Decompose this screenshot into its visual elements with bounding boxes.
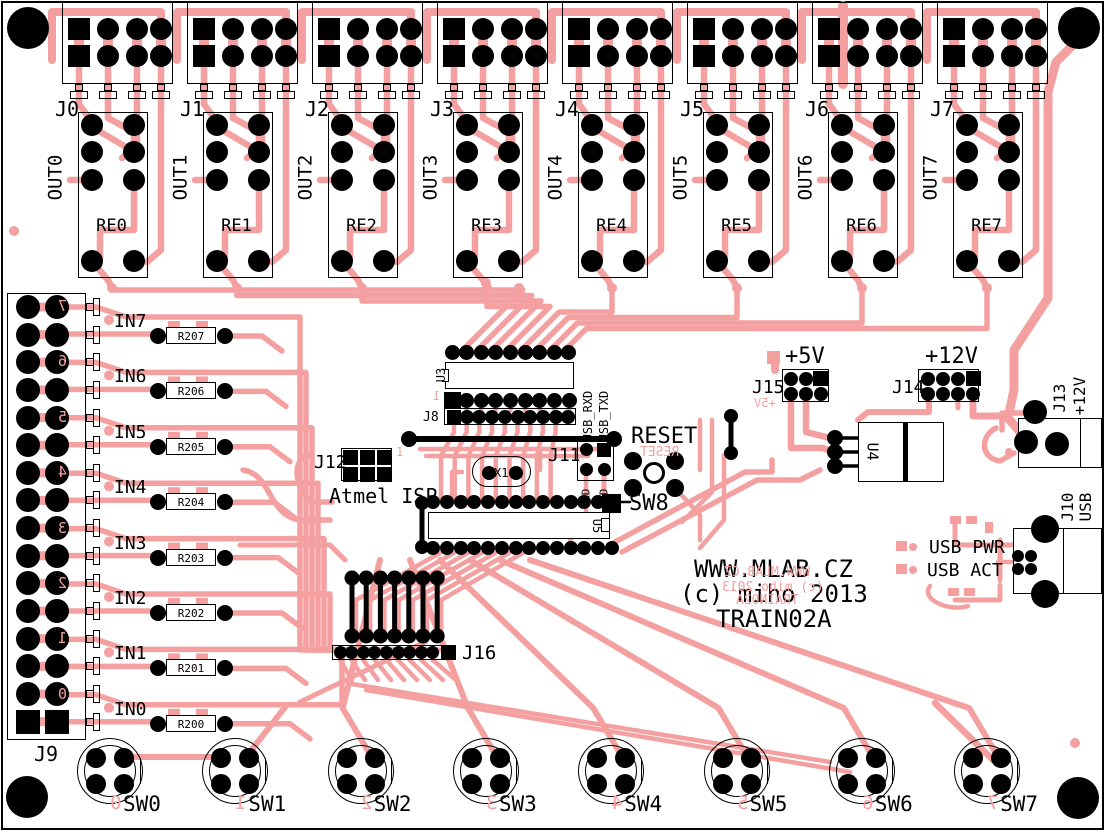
- pad: [485, 410, 499, 424]
- pad: [873, 169, 895, 191]
- pad: [706, 250, 728, 272]
- pad: [581, 114, 603, 136]
- pad: [972, 45, 994, 67]
- terminal-leg: [354, 84, 362, 91]
- terminal-leg: [93, 657, 100, 675]
- pad: [532, 345, 547, 360]
- pad: [495, 541, 509, 555]
- j13-label: J13: [1052, 376, 1068, 420]
- pad: [581, 169, 603, 191]
- terminal-leg: [258, 84, 266, 91]
- pad: [1031, 580, 1059, 608]
- pad: [966, 371, 981, 386]
- pad: [456, 169, 478, 191]
- switch-digit-silk: 4: [611, 794, 622, 813]
- pad: [193, 18, 215, 40]
- resistor: R202: [166, 604, 216, 621]
- channel-digit-silk: 6: [58, 354, 67, 369]
- pad: [501, 45, 523, 67]
- terminal-outline: [562, 2, 673, 84]
- j13-divider: [1080, 418, 1081, 468]
- terminal-leg: [724, 91, 742, 99]
- pad: [876, 45, 898, 67]
- resistor: R205: [166, 438, 216, 455]
- terminal-leg: [883, 84, 891, 91]
- input-label: IN1: [114, 645, 147, 663]
- pad: [16, 599, 40, 623]
- pad: [536, 410, 550, 424]
- pad: [713, 748, 733, 768]
- switch-label: SW2: [374, 794, 412, 815]
- pad: [16, 461, 40, 485]
- pad: [275, 18, 297, 40]
- pad: [693, 18, 715, 40]
- j8-label: J8: [423, 411, 439, 424]
- pad: [956, 250, 978, 272]
- pad: [598, 463, 611, 476]
- pad: [150, 439, 166, 455]
- terminal-leg: [628, 91, 646, 99]
- pad: [873, 250, 895, 272]
- pad: [1023, 400, 1047, 424]
- terminal-leg: [974, 91, 992, 99]
- pad: [365, 774, 385, 794]
- out-label: OUT0: [47, 118, 66, 238]
- pad: [376, 45, 398, 67]
- pad: [900, 45, 922, 67]
- terminal-leg: [782, 84, 790, 91]
- pad: [150, 716, 166, 732]
- switch-chord: [140, 758, 141, 784]
- pad: [509, 541, 523, 555]
- pad: [831, 114, 853, 136]
- out-label: OUT7: [922, 118, 941, 238]
- terminal-outline: [187, 2, 298, 84]
- pad: [45, 378, 69, 402]
- switch-label: SW6: [875, 794, 913, 815]
- pad: [623, 169, 645, 191]
- pad: [373, 141, 395, 163]
- pad: [784, 372, 798, 386]
- input-label: IN3: [114, 535, 147, 553]
- pad: [454, 495, 468, 509]
- pad: [818, 45, 840, 67]
- j9-label: J9: [34, 744, 58, 764]
- connector-label: J7: [930, 99, 954, 119]
- pad: [472, 45, 494, 67]
- terminal-leg: [93, 491, 100, 509]
- terminal-leg: [1008, 84, 1016, 91]
- connector-label: J5: [680, 99, 704, 119]
- connector-label: J1: [180, 99, 204, 119]
- pad: [337, 748, 357, 768]
- j12-pin1-mark: 1: [396, 446, 403, 458]
- resistor: R203: [166, 549, 216, 566]
- u5-body: [428, 512, 610, 539]
- pad: [623, 114, 645, 136]
- pad: [814, 387, 828, 401]
- terminal-leg: [93, 630, 100, 648]
- pad: [784, 387, 798, 401]
- pad: [68, 45, 90, 67]
- atmel-isp-label: Atmel ISP: [329, 486, 437, 506]
- pad: [360, 450, 375, 465]
- pad: [972, 18, 994, 40]
- pad: [503, 393, 518, 408]
- terminal-leg: [633, 84, 641, 91]
- resistor-label: R200: [178, 718, 205, 731]
- pad: [998, 169, 1020, 191]
- pad: [1014, 430, 1038, 454]
- pad: [126, 45, 148, 67]
- pad: [1025, 18, 1047, 40]
- switch-digit-silk: 6: [862, 794, 873, 813]
- pad: [866, 748, 886, 768]
- pad: [536, 495, 550, 509]
- pad: [447, 410, 461, 424]
- pad: [966, 387, 980, 401]
- plus5-label: +5V: [785, 346, 825, 368]
- switch-chord: [1017, 758, 1018, 784]
- pad: [838, 748, 858, 768]
- j11-label: J11: [548, 447, 581, 465]
- channel-digit-silk: 7: [58, 299, 67, 314]
- pad: [467, 495, 481, 509]
- terminal-leg: [93, 381, 100, 399]
- pad: [650, 18, 672, 40]
- terminal-leg: [878, 91, 896, 99]
- u3-body: [445, 362, 574, 389]
- terminal-leg: [450, 84, 458, 91]
- pad: [605, 541, 619, 555]
- pad: [498, 250, 520, 272]
- resistor: R200: [166, 715, 216, 732]
- pad: [936, 387, 950, 401]
- terminal-leg: [950, 84, 958, 91]
- pad: [488, 393, 503, 408]
- pad: [150, 383, 166, 399]
- input-label: IN0: [114, 701, 147, 719]
- pad: [503, 345, 518, 360]
- relay-label: RE6: [828, 218, 895, 235]
- pad: [998, 141, 1020, 163]
- pad: [275, 45, 297, 67]
- brand-url-mirror: WWW.MLAB.CZ: [724, 566, 810, 579]
- pad: [963, 748, 983, 768]
- pad: [876, 18, 898, 40]
- terminal-leg: [604, 84, 612, 91]
- pad: [751, 45, 773, 67]
- pad: [150, 605, 166, 621]
- pad: [741, 774, 761, 794]
- pad: [490, 748, 510, 768]
- pad: [248, 114, 270, 136]
- pad: [217, 660, 233, 676]
- pad: [16, 406, 40, 430]
- pad: [921, 387, 935, 401]
- out-label: OUT4: [547, 118, 566, 238]
- j16-label: J16: [462, 644, 496, 663]
- pad: [81, 114, 103, 136]
- pad: [377, 467, 392, 482]
- pad: [377, 450, 392, 465]
- pad: [445, 345, 460, 360]
- resistor-label: R203: [178, 552, 205, 565]
- pad: [956, 169, 978, 191]
- switch-label: SW0: [123, 794, 161, 815]
- terminal-outline: [937, 2, 1048, 84]
- terminal-leg: [277, 91, 295, 99]
- reset-button: [643, 462, 665, 484]
- j15-label: J15: [752, 379, 785, 397]
- pad: [343, 450, 358, 465]
- switch-label: SW1: [248, 794, 286, 815]
- pad: [481, 541, 495, 555]
- pad: [472, 18, 494, 40]
- resistor: R201: [166, 659, 216, 676]
- pad: [623, 141, 645, 163]
- pad: [1025, 563, 1037, 575]
- resistor-label: R205: [178, 441, 205, 454]
- pad: [68, 18, 90, 40]
- pad: [123, 114, 145, 136]
- channel-digit-silk: 1: [58, 631, 67, 646]
- pad: [373, 114, 395, 136]
- pad: [568, 18, 590, 40]
- switch-label: SW5: [750, 794, 788, 815]
- pad: [813, 371, 828, 386]
- terminal-leg: [854, 84, 862, 91]
- pad: [443, 18, 465, 40]
- terminal-leg: [75, 84, 83, 91]
- terminal-leg: [1003, 91, 1021, 99]
- pad: [666, 479, 684, 497]
- pad: [561, 345, 576, 360]
- terminal-leg: [383, 84, 391, 91]
- pad: [360, 467, 375, 482]
- pad: [16, 682, 40, 706]
- pad: [498, 141, 520, 163]
- input-label: IN6: [114, 368, 147, 386]
- pad: [1025, 45, 1047, 67]
- pad: [462, 774, 482, 794]
- pad: [426, 541, 440, 555]
- pad: [206, 169, 228, 191]
- pad: [248, 169, 270, 191]
- pad: [81, 141, 103, 163]
- pad: [454, 541, 468, 555]
- pad: [831, 250, 853, 272]
- pad: [550, 541, 564, 555]
- input-label: IN5: [114, 424, 147, 442]
- components-layer: U3 1 J8 USB_RXD USB_TXD J11 TXD RXD J12 …: [0, 0, 1107, 832]
- pad: [481, 495, 495, 509]
- pad: [474, 345, 489, 360]
- pad: [318, 18, 340, 40]
- pad: [337, 774, 357, 794]
- pad: [568, 45, 590, 67]
- terminal-leg: [157, 84, 165, 91]
- terminal-leg: [93, 464, 100, 482]
- switch-chord: [641, 758, 642, 784]
- pad: [580, 463, 593, 476]
- pad: [951, 372, 965, 386]
- pad: [482, 466, 496, 480]
- terminal-leg: [907, 84, 915, 91]
- resistor: R204: [166, 493, 216, 510]
- pad: [597, 45, 619, 67]
- pad: [462, 748, 482, 768]
- terminal-leg: [93, 298, 100, 316]
- pad: [751, 18, 773, 40]
- j13-voltage-label: +12V: [1072, 370, 1088, 422]
- pad: [827, 458, 843, 474]
- relay-label: RE3: [453, 218, 520, 235]
- pad: [217, 494, 233, 510]
- terminal-leg: [325, 84, 333, 91]
- pad: [16, 433, 40, 457]
- pad: [831, 141, 853, 163]
- terminal-leg: [93, 547, 100, 565]
- switch-chord: [767, 758, 768, 784]
- pad: [818, 18, 840, 40]
- terminal-leg: [349, 91, 367, 99]
- terminal-leg: [758, 84, 766, 91]
- pad: [459, 393, 474, 408]
- pad: [206, 141, 228, 163]
- pad: [518, 393, 533, 408]
- pad: [550, 495, 564, 509]
- pad: [799, 387, 813, 401]
- pad: [16, 627, 40, 651]
- pad: [443, 45, 465, 67]
- usb-pwr-label: USB PWR: [929, 539, 1005, 557]
- pad: [799, 372, 813, 386]
- terminal-leg: [753, 91, 771, 99]
- pad: [400, 18, 422, 40]
- brand-boardname: TRAIN02A: [716, 607, 832, 631]
- pad: [536, 541, 550, 555]
- j15-mirror-silk: +5V: [754, 397, 776, 409]
- pad: [597, 443, 611, 457]
- terminal-leg: [777, 91, 795, 99]
- pad: [45, 599, 69, 623]
- pad: [626, 45, 648, 67]
- terminal-leg: [508, 84, 516, 91]
- pad: [525, 18, 547, 40]
- resistor-label: R202: [178, 607, 205, 620]
- terminal-leg: [229, 84, 237, 91]
- switch-digit-silk: 5: [737, 794, 748, 813]
- pad: [626, 18, 648, 40]
- pad: [45, 433, 69, 457]
- pad: [838, 774, 858, 794]
- input-label: IN2: [114, 590, 147, 608]
- pad: [206, 114, 228, 136]
- pad: [748, 141, 770, 163]
- pad: [248, 141, 270, 163]
- channel-digit-silk: 0: [58, 687, 67, 702]
- pad: [1012, 550, 1024, 562]
- x1-label: X1: [494, 467, 508, 479]
- pad: [16, 295, 40, 319]
- brand-boardname-mirror: TRAIN02A: [736, 594, 799, 607]
- pad: [86, 774, 106, 794]
- input-label: IN4: [114, 479, 147, 497]
- input-label: IN7: [114, 313, 147, 331]
- pad: [956, 114, 978, 136]
- resistor: R206: [166, 382, 216, 399]
- out-label: OUT2: [297, 118, 316, 238]
- terminal-leg: [93, 602, 100, 620]
- pad: [217, 605, 233, 621]
- pad: [114, 748, 134, 768]
- pad: [748, 114, 770, 136]
- terminal-leg: [532, 84, 540, 91]
- switch-digit-silk: 0: [110, 794, 121, 813]
- terminal-outline: [312, 2, 423, 84]
- connector-label: J4: [555, 99, 579, 119]
- switch-digit-silk: 2: [361, 794, 372, 813]
- pad: [150, 328, 166, 344]
- pad: [426, 495, 440, 509]
- pad: [943, 45, 965, 67]
- relay-label: RE7: [953, 218, 1020, 235]
- switch-chord: [892, 758, 893, 784]
- terminal-leg: [224, 91, 242, 99]
- pad: [591, 541, 605, 555]
- u4-heatsink-bar: [903, 422, 908, 482]
- pad: [373, 250, 395, 272]
- pad: [488, 345, 503, 360]
- terminal-leg: [253, 91, 271, 99]
- pad: [498, 410, 512, 424]
- u3-pin1-mark: 1: [433, 390, 440, 402]
- pad: [440, 541, 454, 555]
- pad: [602, 494, 621, 513]
- pad: [748, 169, 770, 191]
- channel-digit-silk: 3: [58, 521, 67, 536]
- pad: [998, 250, 1020, 272]
- pad: [347, 18, 369, 40]
- pad: [991, 748, 1011, 768]
- terminal-leg: [152, 91, 170, 99]
- pad: [16, 323, 40, 347]
- terminal-leg: [599, 91, 617, 99]
- pad: [581, 250, 603, 272]
- pad: [331, 169, 353, 191]
- terminal-leg: [104, 84, 112, 91]
- pad: [866, 774, 886, 794]
- pad: [474, 393, 489, 408]
- terminal-leg: [979, 84, 987, 91]
- terminal-leg: [200, 84, 208, 91]
- pad: [217, 439, 233, 455]
- pad: [564, 495, 578, 509]
- pad: [251, 45, 273, 67]
- out-label: OUT3: [422, 118, 441, 238]
- relay-label: RE0: [78, 218, 145, 235]
- pad: [518, 345, 533, 360]
- pad: [373, 169, 395, 191]
- pad: [706, 114, 728, 136]
- pad: [741, 748, 761, 768]
- pad: [1001, 45, 1023, 67]
- channel-digit-silk: 2: [58, 576, 67, 591]
- pad: [495, 495, 509, 509]
- connector-label: J6: [805, 99, 829, 119]
- pad: [376, 18, 398, 40]
